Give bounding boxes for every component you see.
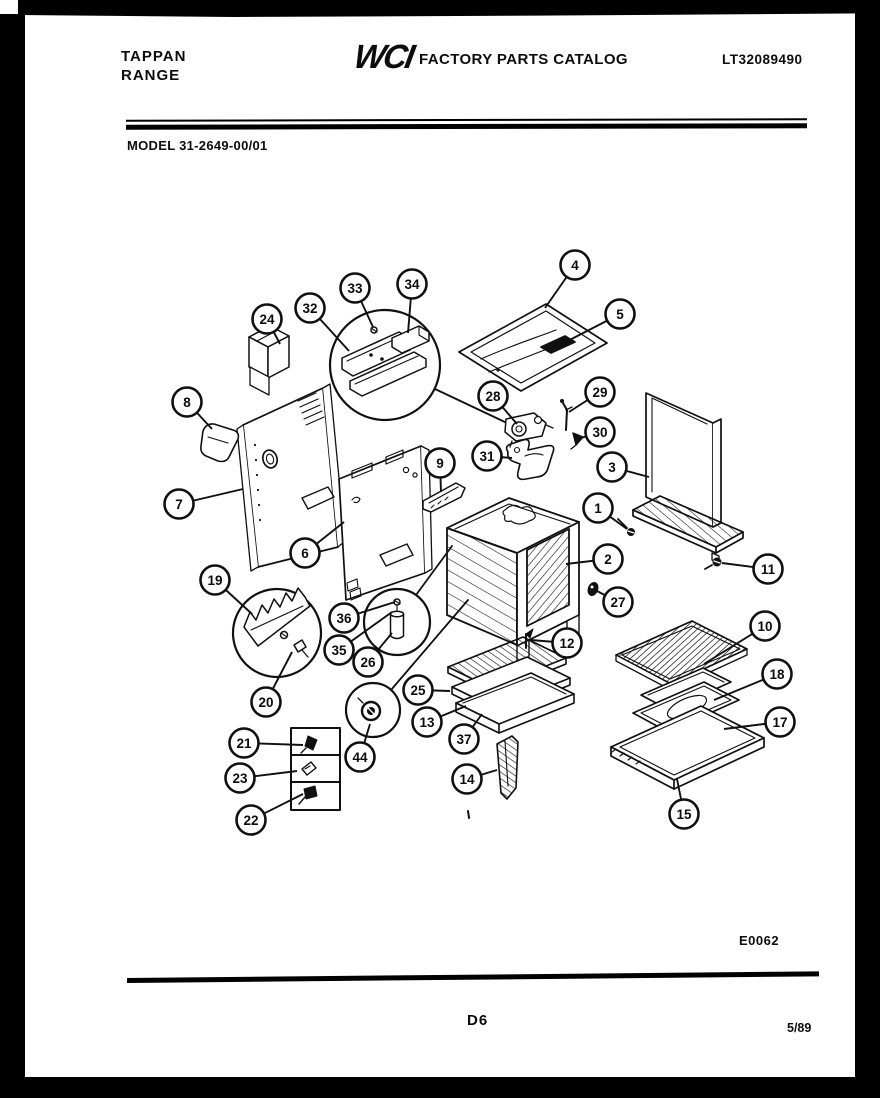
svg-text:34: 34 xyxy=(404,277,420,292)
callout-32: 32 xyxy=(296,294,350,352)
callout-23: 23 xyxy=(226,764,298,793)
svg-text:35: 35 xyxy=(331,643,347,658)
part-bracket-31 xyxy=(507,440,554,480)
svg-text:28: 28 xyxy=(485,389,501,404)
svg-text:5: 5 xyxy=(616,307,624,322)
svg-text:14: 14 xyxy=(459,772,475,787)
part-side-panel-left xyxy=(237,384,345,571)
part-main-top xyxy=(459,304,607,391)
callout-4: 4 xyxy=(545,251,590,309)
svg-text:7: 7 xyxy=(175,497,183,512)
detail-circle-serrated-bracket xyxy=(233,588,321,677)
svg-text:1: 1 xyxy=(594,501,602,516)
part-plate-8 xyxy=(201,424,239,462)
detail-circle-hinge xyxy=(330,310,440,420)
catalog-page: TAPPAN RANGE WCI FACTORY PARTS CATALOG L… xyxy=(0,0,880,1098)
detail-circle-spacer xyxy=(364,589,430,655)
svg-text:23: 23 xyxy=(232,771,248,786)
callout-7: 7 xyxy=(165,489,244,519)
callout-11: 11 xyxy=(722,555,783,584)
part-clip-30 xyxy=(571,433,583,449)
callout-3: 3 xyxy=(598,453,650,482)
svg-text:33: 33 xyxy=(347,281,363,296)
svg-text:44: 44 xyxy=(352,750,368,765)
part-oven-wrapper-panel xyxy=(339,446,432,600)
detail-circle-grommet xyxy=(346,683,400,737)
callout-30: 30 xyxy=(581,418,615,447)
svg-text:32: 32 xyxy=(302,301,317,316)
part-grommet-27 xyxy=(587,581,600,596)
svg-text:29: 29 xyxy=(592,385,607,400)
svg-text:4: 4 xyxy=(571,258,579,273)
callout-25: 25 xyxy=(404,676,451,705)
svg-text:30: 30 xyxy=(592,425,607,440)
svg-text:2: 2 xyxy=(604,552,612,567)
svg-text:9: 9 xyxy=(436,456,444,471)
svg-text:15: 15 xyxy=(676,807,692,822)
callout-37: 37 xyxy=(450,714,483,754)
svg-text:21: 21 xyxy=(236,736,252,751)
svg-text:13: 13 xyxy=(419,715,435,730)
svg-text:11: 11 xyxy=(761,562,776,577)
callout-28: 28 xyxy=(479,382,518,425)
svg-text:22: 22 xyxy=(243,813,258,828)
revision-date: 5/89 xyxy=(787,1021,811,1035)
page-code: D6 xyxy=(467,1012,488,1029)
callout-1: 1 xyxy=(584,494,628,530)
part-side-panel-right xyxy=(633,393,743,563)
svg-text:24: 24 xyxy=(259,312,275,327)
svg-text:36: 36 xyxy=(336,611,352,626)
stray-mark xyxy=(468,811,469,818)
callout-14: 14 xyxy=(453,765,498,794)
svg-text:10: 10 xyxy=(757,619,772,634)
figure-code: E0062 xyxy=(739,933,779,948)
part-drawer-pan xyxy=(611,706,764,789)
svg-text:6: 6 xyxy=(301,546,309,561)
part-pin-29 xyxy=(560,399,572,430)
svg-text:12: 12 xyxy=(559,636,574,651)
svg-text:17: 17 xyxy=(772,715,787,730)
callout-19: 19 xyxy=(201,566,253,615)
svg-text:37: 37 xyxy=(456,732,471,747)
svg-text:8: 8 xyxy=(183,395,191,410)
svg-text:3: 3 xyxy=(608,460,616,475)
part-bracket-14 xyxy=(497,736,518,799)
callout-31: 31 xyxy=(473,442,513,471)
hardware-box xyxy=(291,728,340,810)
svg-text:27: 27 xyxy=(610,595,625,610)
callout-8: 8 xyxy=(173,388,213,430)
svg-text:20: 20 xyxy=(258,695,273,710)
svg-text:31: 31 xyxy=(479,449,495,464)
svg-text:26: 26 xyxy=(360,655,376,670)
callout-29: 29 xyxy=(569,378,615,413)
svg-text:18: 18 xyxy=(769,667,785,682)
callout-27: 27 xyxy=(597,588,633,617)
part-bracket-24 xyxy=(249,326,289,395)
svg-text:25: 25 xyxy=(410,683,426,698)
svg-text:19: 19 xyxy=(207,573,222,588)
